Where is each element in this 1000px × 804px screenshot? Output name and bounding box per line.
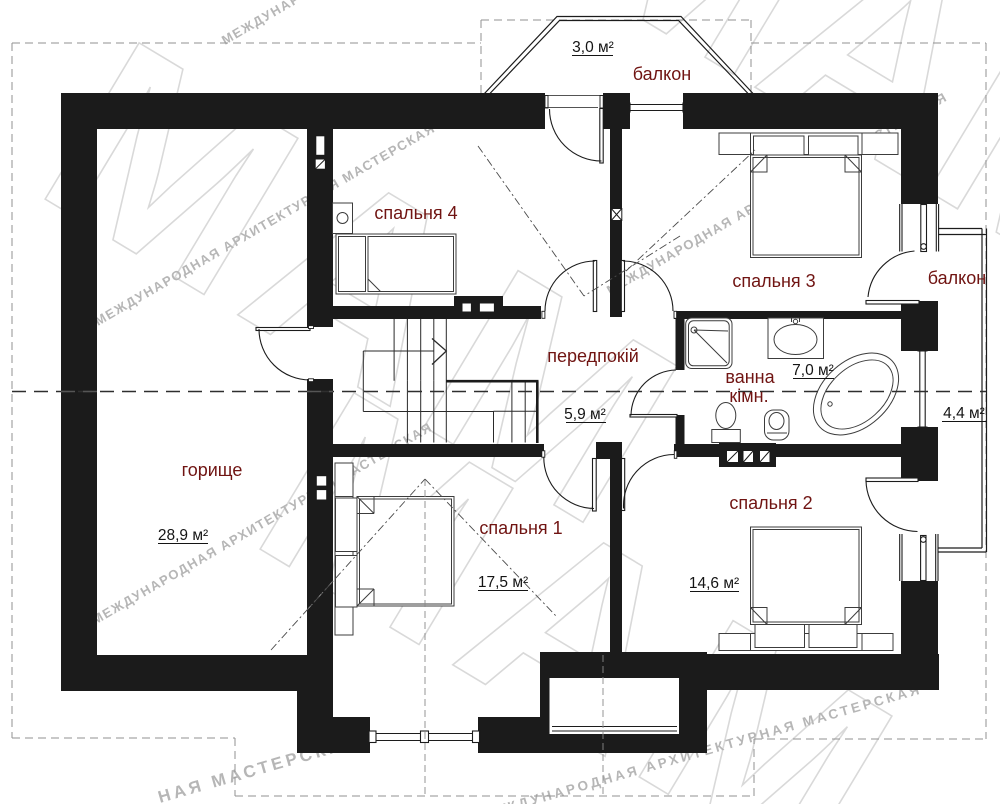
svg-text:7,0 м²: 7,0 м² [792,362,834,379]
svg-text:горище: горище [182,460,243,480]
svg-text:14,6 м²: 14,6 м² [689,575,739,592]
svg-text:балкон: балкон [928,268,986,288]
svg-text:17,5 м²: 17,5 м² [478,574,528,591]
svg-text:передпокій: передпокій [547,346,639,366]
svg-text:балкон: балкон [633,64,691,84]
svg-text:3,0 м²: 3,0 м² [572,39,614,56]
svg-text:28,9 м²: 28,9 м² [158,527,208,544]
svg-text:спальня 3: спальня 3 [732,271,815,291]
svg-text:5,9 м²: 5,9 м² [564,406,606,423]
svg-text:ванна: ванна [725,367,775,387]
svg-text:4,4 м²: 4,4 м² [943,405,985,422]
svg-text:спальня 4: спальня 4 [374,203,457,223]
svg-text:спальня 1: спальня 1 [479,518,562,538]
svg-text:кімн.: кімн. [729,386,768,406]
svg-text:спальня 2: спальня 2 [729,493,812,513]
